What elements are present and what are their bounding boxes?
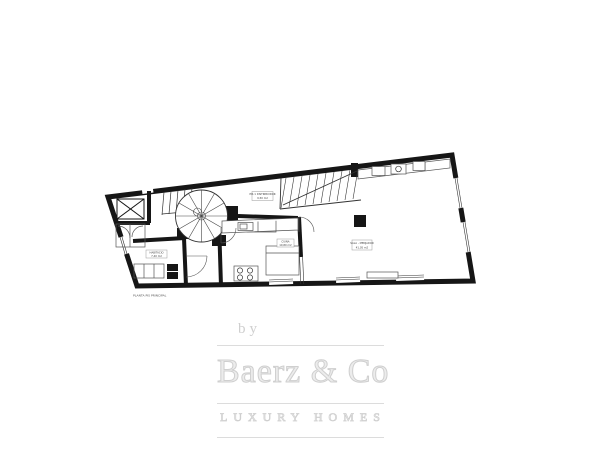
svg-text:9,50 m2: 9,50 m2 <box>257 196 268 200</box>
listing-image: PIS 1 DISTRIBUIDOR 9,50 m2 HABITACIO 7,4… <box>0 0 600 450</box>
svg-text:HABITACIO: HABITACIO <box>150 250 164 254</box>
svg-text:41,05 m2: 41,05 m2 <box>356 245 369 249</box>
plan-caption: PLANTA PIS PRINCIPAL <box>133 294 167 298</box>
column <box>354 215 366 227</box>
svg-text:10,80 m2: 10,80 m2 <box>279 243 292 247</box>
svg-text:SALA - MENJADOR: SALA - MENJADOR <box>350 241 374 245</box>
svg-text:CUINA: CUINA <box>281 239 289 243</box>
spiral-staircase <box>176 190 228 242</box>
watermark-tagline: LUXURY HOMES <box>217 404 384 432</box>
bedroom-label: HABITACIO 7,40 m2 <box>146 250 167 258</box>
hall-label: PIS 1 DISTRIBUIDOR 9,50 m2 <box>249 192 275 201</box>
kitchen-label: CUINA 10,80 m2 <box>277 239 294 247</box>
watermark-by: by <box>217 318 384 340</box>
watermark-rule-bottom <box>217 437 384 438</box>
svg-text:PIS 1 DISTRIBUIDOR: PIS 1 DISTRIBUIDOR <box>249 192 275 196</box>
watermark-logo: by Baerz & Co LUXURY HOMES <box>217 318 384 438</box>
svg-text:7,40 m2: 7,40 m2 <box>151 254 162 258</box>
watermark-brand: Baerz & Co <box>217 346 384 398</box>
living-room-label: SALA - MENJADOR 41,05 m2 <box>350 240 374 250</box>
